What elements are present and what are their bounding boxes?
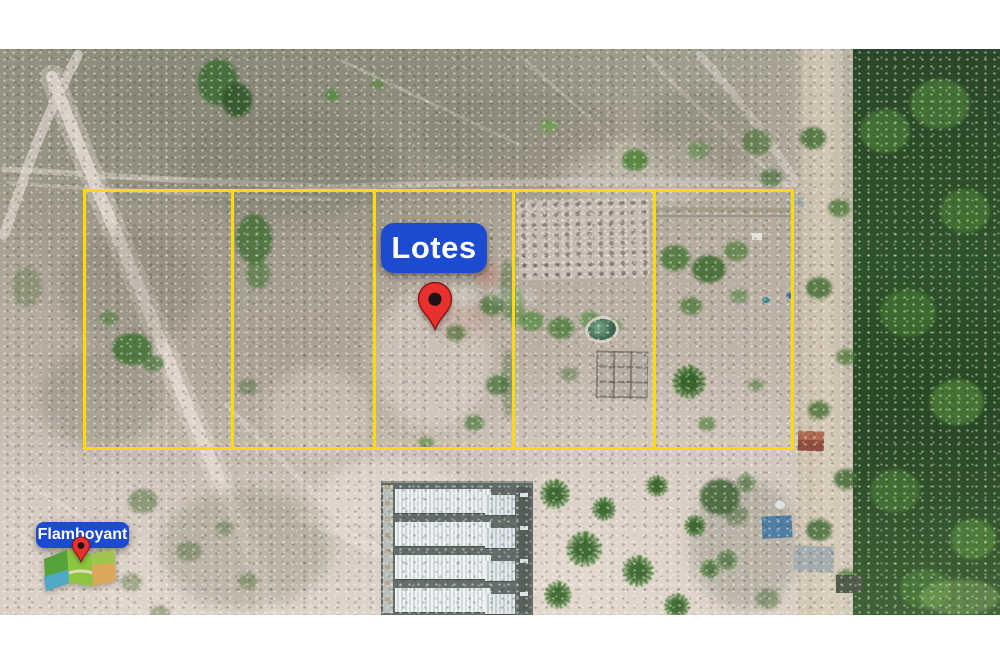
palm-tree: [664, 593, 690, 615]
shed: [794, 545, 835, 572]
vegetation-patch: [828, 199, 850, 217]
palm-tree: [684, 515, 706, 537]
roof-row: [485, 495, 515, 515]
tree-canopy: [870, 469, 920, 513]
brand-pin-icon: [70, 536, 92, 572]
roof-row: [395, 489, 491, 513]
vegetation-patch: [325, 89, 339, 101]
vegetation-patch: [724, 505, 748, 525]
lot-region-5: [656, 192, 791, 447]
palm-tree: [540, 479, 570, 509]
tree-canopy: [910, 79, 970, 129]
scrub-patch: [640, 89, 760, 179]
tree-canopy: [860, 109, 910, 153]
roof-row: [485, 528, 515, 548]
vegetation-patch: [806, 519, 832, 541]
vegetation-patch: [176, 541, 202, 561]
lots-badge-label: Lotes: [391, 230, 476, 266]
roof-row: [395, 522, 491, 546]
vegetation-patch: [688, 141, 710, 159]
red-roof-hut: [798, 431, 825, 452]
building-roofs: [381, 483, 533, 615]
tree-canopy: [950, 519, 996, 559]
vegetation-patch: [372, 79, 384, 89]
vegetation-patch: [800, 127, 826, 149]
lot-region-1: [86, 192, 231, 447]
palm-tree: [646, 475, 668, 497]
lots-badge: Lotes: [381, 223, 487, 273]
vegetation-patch: [128, 489, 158, 513]
real-estate-listing-image: Lotes Flamboyant: [0, 0, 1000, 667]
vegetation-patch: [150, 605, 170, 615]
vegetation-patch: [540, 119, 558, 133]
tree-canopy: [920, 579, 1000, 615]
vegetation-patch: [808, 401, 830, 419]
roof-row: [395, 588, 491, 612]
vegetation-patch: [622, 149, 648, 171]
palm-tree: [716, 549, 738, 571]
palm-tree: [736, 473, 756, 493]
roof-row: [485, 561, 515, 581]
vegetation-patch: [836, 349, 856, 365]
shed: [836, 575, 862, 593]
lot-region-2: [234, 192, 373, 447]
vegetation-patch: [120, 573, 142, 591]
vegetation-patch: [12, 267, 42, 307]
palm-tree: [622, 555, 654, 587]
scrub-patch: [420, 89, 620, 179]
roof-row: [485, 594, 515, 614]
forest-strip: [853, 49, 1000, 615]
map-pin-icon: [413, 281, 457, 333]
vegetation-patch: [222, 83, 252, 117]
vegetation-patch: [742, 129, 772, 155]
blue-tarp: [761, 515, 792, 539]
vegetation-patch: [806, 277, 832, 299]
palm-tree: [592, 497, 616, 521]
palm-tree: [566, 531, 602, 567]
roof-row: [395, 555, 491, 579]
palm-tree: [544, 581, 572, 609]
tree-canopy: [940, 189, 990, 233]
tree-canopy: [880, 289, 936, 337]
vegetation-patch: [216, 521, 234, 535]
vegetation-patch: [760, 169, 782, 187]
top-letterbox: [0, 0, 1000, 49]
walkway: [383, 485, 393, 613]
vegetation-patch: [834, 469, 858, 489]
lot-region-4: [515, 192, 653, 447]
water-tank: [775, 501, 785, 509]
aerial-photo: Lotes Flamboyant: [0, 49, 1000, 615]
vegetation-patch: [238, 573, 258, 589]
bottom-letterbox: [0, 615, 1000, 667]
tree-canopy: [930, 379, 984, 425]
ac-units-strip: [517, 487, 531, 613]
vegetation-patch: [756, 589, 780, 609]
